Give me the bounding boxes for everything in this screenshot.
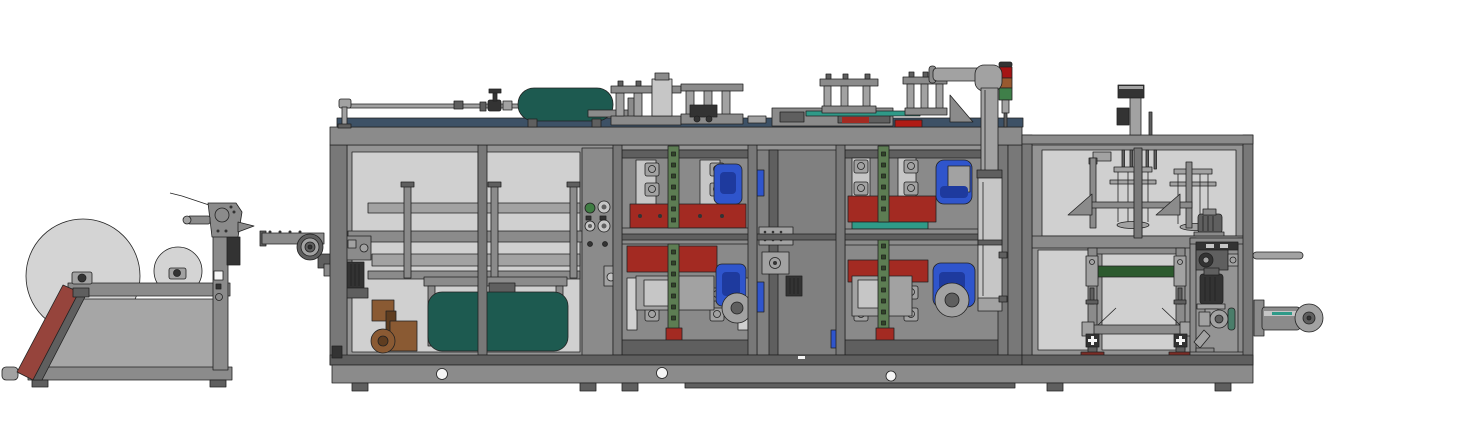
output-arms	[1253, 252, 1323, 336]
output-rod	[1253, 252, 1303, 259]
infeed-arm	[260, 231, 334, 277]
cabinet-mullion	[1134, 148, 1142, 238]
skid-hole	[886, 371, 896, 381]
roof-unit-right	[1117, 85, 1152, 135]
right-cabinet	[1022, 85, 1323, 365]
pneumatic-clamp-upper	[714, 164, 742, 204]
chain-gearbox	[762, 252, 789, 274]
machine-line-svg	[0, 0, 1459, 425]
mid-compartment	[757, 150, 838, 355]
rail-upper	[368, 203, 580, 213]
cabinet-column-right	[1243, 135, 1253, 365]
exhaust-chimney	[652, 79, 672, 116]
drive-wheel	[297, 234, 323, 260]
post-dot	[216, 284, 221, 289]
stand-foot	[32, 380, 48, 387]
stand-base	[28, 367, 232, 380]
teal-bar	[852, 222, 928, 229]
top-beam	[330, 127, 1022, 145]
skid-hole	[657, 368, 668, 379]
cabinet-roof	[1022, 135, 1253, 144]
cabinet-column-left	[1022, 135, 1032, 365]
roll-unwinder	[2, 193, 254, 387]
machine-foot	[1047, 383, 1063, 391]
machine-foot	[580, 383, 596, 391]
transport-rail	[615, 234, 1008, 240]
machine-foot	[622, 383, 638, 391]
roof-press-b1	[820, 74, 878, 113]
heater-block-top	[630, 204, 746, 228]
web-guide	[170, 193, 254, 237]
rail-post	[404, 186, 411, 278]
post-sensor	[214, 271, 223, 280]
rail-lower	[372, 254, 580, 266]
roll-chuck-small	[169, 268, 186, 279]
stand-foot	[210, 380, 226, 387]
skid-hole	[437, 369, 448, 380]
heater-block-top	[848, 196, 936, 222]
forming-station	[622, 146, 752, 355]
conveyor-belt	[1097, 266, 1179, 277]
roof-press-a1	[611, 73, 681, 125]
output-cylinder	[1262, 307, 1300, 330]
rail-post	[570, 186, 577, 278]
pressure-valve	[488, 89, 501, 111]
ramp-end	[2, 367, 18, 380]
button-small[interactable]	[588, 242, 593, 247]
post-motor	[227, 237, 240, 265]
rail-post	[491, 186, 498, 278]
tower-cap	[999, 62, 1012, 67]
light-green	[999, 88, 1012, 100]
pneumatic-clamp-upper	[936, 160, 972, 204]
machine-foot	[352, 383, 368, 391]
base-skid	[332, 365, 1253, 391]
knob-green[interactable]	[585, 203, 595, 213]
stand-beam	[68, 283, 230, 296]
machine-foot	[1215, 383, 1231, 391]
machine-line-illustration	[0, 0, 1459, 425]
button-small[interactable]	[603, 242, 608, 247]
conveyor-window	[1038, 248, 1192, 358]
roof-press-a2	[681, 84, 766, 124]
inner-tank	[428, 292, 568, 351]
